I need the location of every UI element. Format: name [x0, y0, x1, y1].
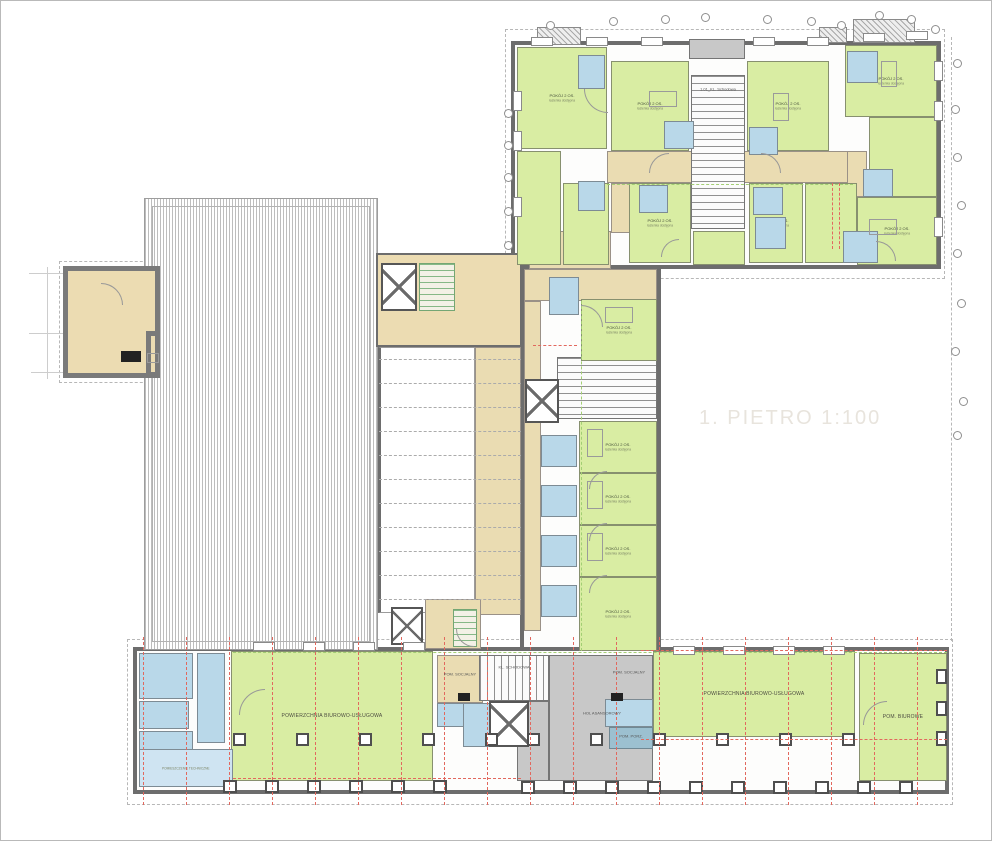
section-line — [186, 637, 187, 805]
room-label: POKÓJ 2 OS. — [606, 442, 631, 447]
roof-hatch-inner — [152, 206, 370, 642]
room-label: POKÓJ 2 OS. — [606, 609, 631, 614]
guide-green — [607, 184, 853, 185]
fixture — [458, 693, 470, 701]
bathroom — [549, 277, 579, 315]
axis-marker — [661, 15, 670, 24]
axis-marker — [959, 397, 968, 406]
axis-marker — [907, 15, 916, 24]
window — [934, 101, 943, 121]
text-label: POM. PORZ. — [619, 734, 643, 739]
room-label: POKÓJ 2 OS. — [606, 494, 631, 499]
dimension-line — [47, 267, 48, 379]
bathroom — [749, 127, 778, 155]
section-line — [358, 637, 359, 805]
bathroom — [847, 51, 878, 83]
void-area — [378, 347, 475, 613]
section-line — [530, 637, 531, 805]
bathroom — [755, 217, 786, 249]
room: POWIERZCHNIA BIUROWO-USŁUGOWA — [653, 651, 855, 737]
room: POWIERZCHNIA BIUROWO-USŁUGOWA — [231, 651, 433, 781]
room — [517, 151, 561, 265]
room-label: łazienka dostępna — [605, 500, 631, 504]
fixture — [121, 351, 141, 362]
projection-line — [379, 479, 521, 480]
room-label: łazienka dostępna — [606, 331, 632, 335]
window — [753, 37, 775, 46]
elevator — [525, 379, 559, 423]
axis-marker — [504, 141, 513, 150]
furniture — [881, 61, 897, 87]
staircase — [557, 357, 657, 419]
column — [899, 781, 913, 794]
projection-line — [379, 359, 521, 360]
bathroom — [541, 535, 577, 567]
column — [422, 733, 435, 746]
section-line — [831, 637, 832, 805]
section-line — [641, 739, 947, 740]
section-line — [616, 637, 617, 805]
drawing-sheet: 1. PIETRO 1:100 POKÓJ 2 OS.łazienka dost… — [0, 0, 992, 841]
window — [586, 37, 608, 46]
room-label: POKÓJ 2 OS. — [606, 546, 631, 551]
column — [689, 781, 703, 794]
section-line — [641, 650, 947, 651]
furniture — [605, 307, 633, 323]
bathroom — [578, 181, 605, 211]
text-label: HOL ASANSOROWY — [583, 711, 621, 716]
window — [513, 91, 522, 111]
text-label: 1.01_KL. Schodowa — [700, 87, 736, 92]
room-label: POWIERZCHNIA BIUROWO-USŁUGOWA — [282, 713, 383, 719]
window — [353, 642, 375, 651]
room-label: POWIERZCHNIA BIUROWO-USŁUGOWA — [704, 691, 805, 697]
window — [906, 31, 928, 40]
bathroom — [664, 121, 694, 149]
hall — [689, 39, 745, 59]
column — [349, 780, 363, 793]
section-line — [487, 637, 488, 805]
section-line — [272, 637, 273, 805]
projection-line — [379, 551, 521, 552]
section-line — [143, 637, 144, 805]
projection-line — [379, 527, 521, 528]
section-line — [233, 778, 521, 779]
bathroom — [578, 55, 605, 89]
column — [391, 780, 405, 793]
axis-marker — [875, 11, 884, 20]
furniture — [773, 93, 789, 121]
furniture — [587, 429, 603, 457]
room-label: łazienka dostępna — [647, 224, 673, 228]
furniture — [587, 481, 603, 509]
room-label: POKÓJ 2 OS. — [550, 93, 575, 98]
guide-green — [581, 301, 582, 651]
furniture — [649, 91, 677, 107]
corridor — [524, 301, 541, 631]
floor-plan: 1. PIETRO 1:100 POKÓJ 2 OS.łazienka dost… — [1, 1, 992, 841]
section-line — [659, 637, 660, 805]
axis-marker — [504, 207, 513, 216]
staircase — [479, 655, 549, 701]
axis-marker — [807, 17, 816, 26]
axis-marker — [957, 201, 966, 210]
section-line — [745, 637, 746, 805]
section-line — [839, 183, 840, 249]
column — [773, 781, 787, 794]
furniture — [869, 219, 897, 235]
text-label: POM. SOCJALNY — [613, 670, 645, 675]
section-line — [832, 183, 833, 249]
axis-marker — [953, 59, 962, 68]
window — [531, 37, 553, 46]
bathroom — [541, 435, 577, 467]
corridor — [524, 269, 657, 301]
room-label: łazienka dostępna — [605, 615, 631, 619]
column — [857, 781, 871, 794]
bathroom — [139, 701, 189, 729]
room-label: łazienka dostępna — [637, 107, 663, 111]
axis-marker — [931, 25, 940, 34]
column — [563, 781, 577, 794]
bathroom — [639, 185, 668, 213]
section-line — [444, 637, 445, 805]
axis-marker — [953, 249, 962, 258]
axis-marker — [957, 299, 966, 308]
axis-marker — [504, 173, 513, 182]
axis-marker — [951, 347, 960, 356]
bathroom — [139, 653, 193, 699]
site-outline — [951, 37, 952, 641]
window — [934, 61, 943, 81]
column — [731, 781, 745, 794]
bathroom — [843, 231, 878, 263]
bathroom — [541, 585, 577, 617]
column — [590, 733, 603, 746]
projection-line — [379, 455, 521, 456]
column — [233, 733, 246, 746]
window — [403, 642, 425, 651]
furniture — [587, 533, 603, 561]
projection-line — [379, 599, 521, 600]
room-label: POKÓJ 2 OS. — [607, 325, 632, 330]
bathroom — [753, 187, 783, 215]
axis-marker — [953, 431, 962, 440]
projection-line — [379, 383, 521, 384]
window — [641, 37, 663, 46]
column — [527, 733, 540, 746]
axis-marker — [504, 241, 513, 250]
column — [936, 669, 947, 684]
axis-marker — [837, 21, 846, 30]
axis-marker — [763, 15, 772, 24]
bathroom — [541, 485, 577, 517]
text-label: POM. SOCJALNY — [444, 672, 476, 677]
room — [693, 231, 745, 265]
bathroom — [863, 169, 893, 197]
column — [296, 733, 309, 746]
column — [521, 781, 535, 794]
section-line — [401, 637, 402, 805]
section-line — [573, 637, 574, 805]
axis-marker — [609, 17, 618, 26]
axis-marker — [953, 153, 962, 162]
projection-line — [379, 431, 521, 432]
projection-line — [379, 575, 521, 576]
column — [307, 780, 321, 793]
elevator — [391, 607, 423, 645]
window — [303, 642, 325, 651]
elevator — [381, 263, 417, 311]
room-label: łazienka dostępna — [605, 552, 631, 556]
window — [513, 197, 522, 217]
section-line — [702, 637, 703, 805]
column — [815, 781, 829, 794]
window — [513, 131, 522, 151]
staircase — [691, 75, 745, 229]
axis-marker — [504, 109, 513, 118]
projection-line — [379, 503, 521, 504]
plan-title: 1. PIETRO 1:100 — [699, 407, 881, 430]
column — [223, 780, 237, 793]
window — [934, 217, 943, 237]
room-label: łazienka dostępna — [549, 99, 575, 103]
axis-marker — [951, 105, 960, 114]
axis-marker — [546, 21, 555, 30]
section-line — [229, 637, 230, 805]
bathroom — [197, 653, 225, 743]
fixture — [611, 693, 623, 701]
section-line — [917, 637, 918, 805]
staircase-green — [419, 263, 455, 311]
column — [936, 701, 947, 716]
window — [807, 37, 829, 46]
furniture — [147, 353, 159, 363]
section-line — [788, 637, 789, 805]
projection-line — [379, 407, 521, 408]
column — [359, 733, 372, 746]
text-label: KL. SCHODOWA — [499, 665, 530, 670]
section-line — [315, 637, 316, 805]
room-label: łazienka dostępna — [605, 448, 631, 452]
section-line — [533, 345, 577, 346]
window — [863, 33, 885, 42]
axis-marker — [701, 13, 710, 22]
room-label: POKÓJ 2 OS. — [648, 218, 673, 223]
